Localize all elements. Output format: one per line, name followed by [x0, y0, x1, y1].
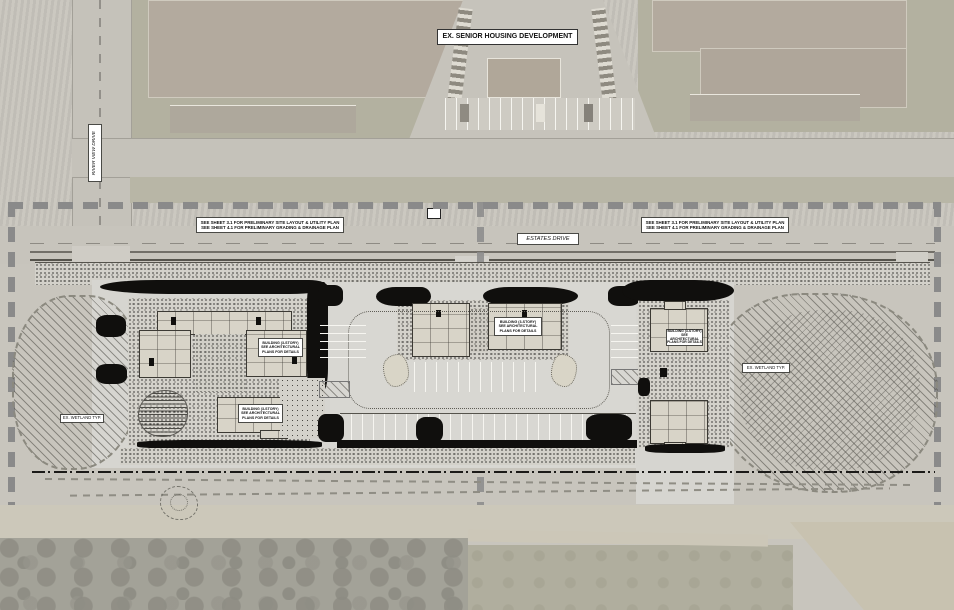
building-label-1-line3: PLANS FOR DETAILS — [262, 350, 299, 354]
building-footprint-left-wing-w — [139, 330, 191, 378]
courtyard-left — [195, 334, 245, 392]
ada-stall-west — [319, 381, 350, 398]
entrance-building — [487, 58, 561, 98]
garage-row-left — [170, 105, 356, 133]
rain-garden-left — [138, 390, 188, 437]
sidewalk-band-center — [337, 440, 637, 448]
teardrop-island-left — [383, 354, 409, 387]
sheet-note-left: SEE SHEET 3.1 FOR PRELIMINARY SITE LAYOU… — [196, 217, 344, 233]
road-river-view — [72, 0, 132, 262]
building-label-1: BUILDING (3-STORY) SEE ARCHITECTURAL PLA… — [258, 338, 303, 357]
building-footprint-right-south — [650, 400, 708, 444]
ada-stall-east — [611, 369, 639, 385]
stair-core-3 — [149, 358, 154, 366]
building-bump-right-north — [664, 301, 686, 310]
dark-blob-left-2 — [96, 364, 127, 384]
building-label-2: BUILDING (3-STORY) SEE ARCHITECTURAL PLA… — [238, 404, 283, 423]
stair-core-4 — [292, 356, 297, 364]
existing-development-text: EX. SENIOR HOUSING DEVELOPMENT — [443, 33, 573, 41]
stair-core-2 — [256, 317, 261, 325]
parking-row-line — [340, 413, 636, 414]
road-rear-drive — [72, 138, 954, 178]
dark-band-left-top — [100, 280, 328, 294]
median-strip — [130, 177, 954, 203]
wetland-label-right-text: EX. WETLAND TYP. — [747, 366, 785, 371]
river-view-drive-label: RIVER VIEW DRIVE — [88, 124, 102, 182]
stair-core-1 — [171, 317, 176, 325]
property-line-dashdot — [32, 471, 935, 473]
building-label-4: BUILDING (3-STORY) SEE ARCHITECTURAL PLA… — [666, 329, 703, 346]
parked-car-3 — [584, 104, 593, 122]
dark-blob-center-wl — [318, 285, 343, 306]
parked-car-1 — [460, 104, 469, 122]
dark-band-right-top — [622, 280, 734, 301]
sheet-note-right: SEE SHEET 3.1 FOR PRELIMINARY SITE LAYOU… — [641, 217, 789, 233]
phase-boundary-top — [8, 202, 940, 209]
existing-development-label: EX. SENIOR HOUSING DEVELOPMENT — [437, 29, 578, 45]
catch-basin-marker — [427, 208, 441, 219]
pond — [0, 538, 468, 610]
site-plan-canvas: BUILDING (3-STORY) SEE ARCHITECTURAL PLA… — [0, 0, 954, 610]
existing-roof-right — [652, 0, 907, 52]
tree-symbol-inner — [170, 494, 188, 511]
river-view-drive-text: RIVER VIEW DRIVE — [92, 131, 98, 175]
landscape-band-bottom — [120, 448, 635, 465]
wetland-hatch-right-inner — [740, 310, 920, 470]
parked-car-2 — [536, 104, 545, 122]
field-center — [468, 545, 793, 610]
dark-island-bottom-right — [586, 414, 632, 442]
sheet-note-left-line2: SEE SHEET 4.1 FOR PRELIMINARY GRADING & … — [201, 225, 339, 230]
dark-band-right-bottom — [645, 444, 725, 453]
garage-row-right — [690, 94, 860, 121]
parking-stalls-upper — [414, 362, 546, 392]
wetland-label-left-text: EX. WETLAND TYP. — [63, 416, 101, 421]
phase-boundary-right — [934, 202, 941, 527]
dark-blob-left-1 — [96, 315, 126, 337]
parking-stalls-west — [320, 324, 366, 358]
building-label-4-line3: PLANS FOR DETAILS — [667, 341, 702, 345]
sheet-note-right-line2: SEE SHEET 4.1 FOR PRELIMINARY GRADING & … — [646, 225, 784, 230]
estates-drive-text: ESTATES DRIVE — [526, 236, 569, 242]
wetland-label-left: EX. WETLAND TYP. — [60, 414, 104, 423]
wetland-label-right: EX. WETLAND TYP. — [742, 363, 790, 373]
stair-core-7 — [660, 368, 667, 377]
path-diagonal — [790, 522, 954, 610]
parking-stalls-east — [611, 324, 640, 358]
estates-drive-label: ESTATES DRIVE — [517, 233, 579, 245]
building-label-2-line3: PLANS FOR DETAILS — [242, 416, 279, 420]
dark-island-bottom-left — [318, 414, 344, 442]
dark-strip-right-edge — [638, 378, 650, 396]
